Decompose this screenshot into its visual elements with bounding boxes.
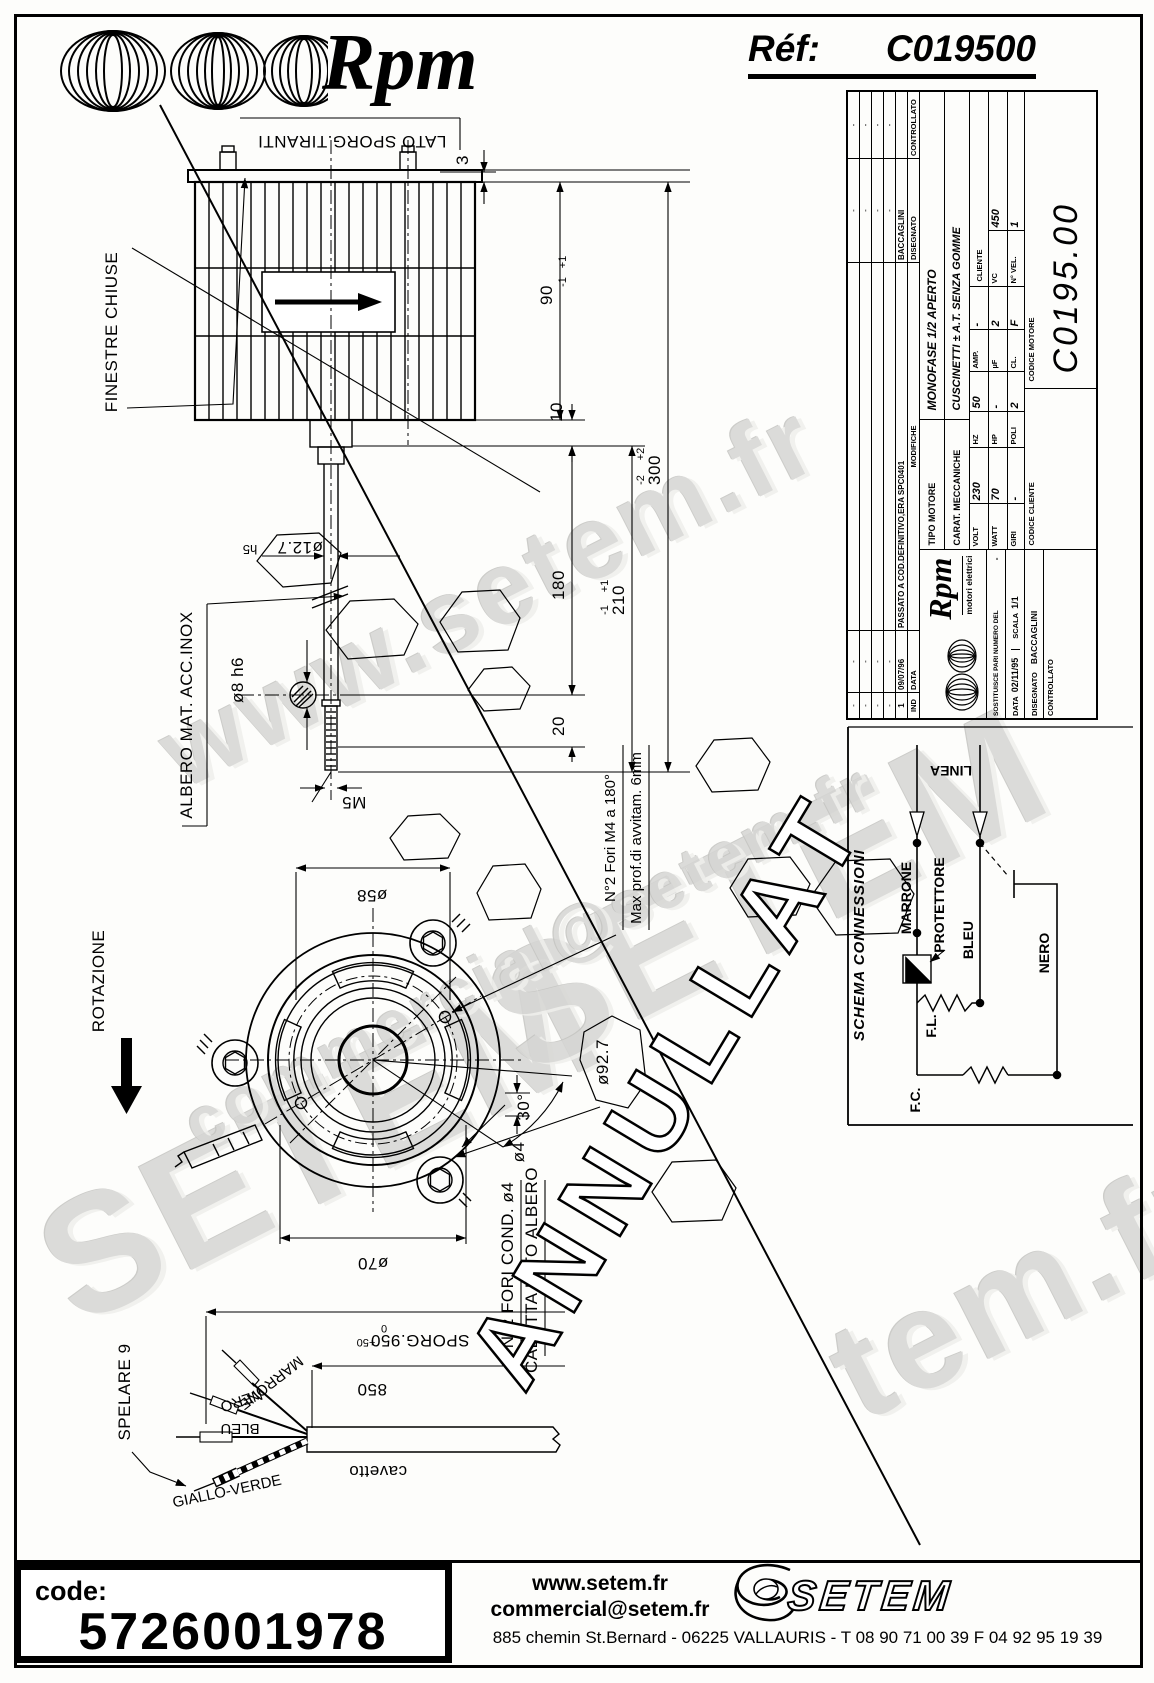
cliente-label: CLIENTE <box>975 249 984 285</box>
dim-20: 20 <box>549 716 568 736</box>
label-albero: ALBERO MAT. ACC.INOX <box>177 611 196 818</box>
hp-label: HP <box>989 411 1007 447</box>
rev-cell: - <box>884 92 896 158</box>
rev-disegnato-value: BACCAGLINI <box>896 158 908 262</box>
rev-col-data: DATA <box>908 630 920 692</box>
poli-value: 2 <box>1008 371 1025 411</box>
tb-rpm-script: Rpm <box>922 558 959 620</box>
tb-data-value: 02/11/95 <box>1010 658 1020 697</box>
dim-300-tol-minus: -2 <box>635 475 647 485</box>
dim-3: 3 <box>453 155 472 165</box>
dim-m5: M5 <box>342 793 367 812</box>
codice-motore-label: CODICE MOTORE <box>1027 318 1036 382</box>
dim-210: 210 <box>609 585 628 615</box>
tipo-motore-value: MONOFASE 1/2 APERTO <box>925 269 939 418</box>
schema-bleu: BLEU <box>960 921 976 959</box>
wire-label-bleu: BLEU <box>220 1420 259 1437</box>
label-rotazione: ROTAZIONE <box>89 930 108 1032</box>
carat-value: CUSCINETTI ± A.T. SENZA GOMME <box>951 227 963 418</box>
codice-cliente-label: CODICE CLIENTE <box>1025 389 1036 549</box>
side-view-dimension-texts: LATO SPORG.TIRANTI 3 90 +1 -1 10 180 20 … <box>102 132 664 819</box>
setem-logo-text: SETEM <box>785 1572 955 1620</box>
tipo-motore-label: TIPO MOTORE <box>920 419 944 549</box>
rev-cell: - <box>860 158 872 262</box>
rev-cell <box>848 262 860 630</box>
rev-cell: - <box>884 692 896 718</box>
rev-cell: - <box>872 692 884 718</box>
rev-index: 1 <box>896 692 908 718</box>
nvel-label: N° VEL. <box>1008 230 1025 286</box>
watt-label: WATT <box>989 503 1007 549</box>
rev-cell: - <box>848 692 860 718</box>
dim-d12-7: ø12.7 <box>277 538 323 557</box>
dim-90-tol-minus: -1 <box>557 277 569 287</box>
rev-col-controllato: CONTROLLATO <box>908 92 920 158</box>
tb-rpm-coils-icon <box>942 628 982 714</box>
rev-description: PASSATO A COD.DEFINITIVO,ERA SPC0401 <box>896 262 908 630</box>
carat-label: CARAT. MECCANICHE <box>945 419 969 549</box>
dim-210-tol-minus: -1 <box>599 605 611 615</box>
dim-d58: ø58 <box>357 886 388 905</box>
dim-10: 10 <box>547 402 566 422</box>
tb-disegnato-value: BACCAGLINI <box>1029 611 1039 672</box>
hz-label: HZ <box>970 411 988 447</box>
cable-detail-texts: BLEU NERO MARRONE GIALLO-VERDE cavetto 8… <box>115 1322 470 1511</box>
label-cavetto: cavetto <box>349 1462 407 1481</box>
schema-texts: SCHEMA CONNESSIONI LINEA MARRONE PROTETT… <box>851 763 1052 1112</box>
watt-value: 70 <box>989 447 1007 503</box>
dim-sporg-tol-50: +50 <box>357 1336 376 1348</box>
uf-value: 2 <box>989 291 1007 329</box>
label-max-prof: Max prof.di avvitam. 6mm <box>628 752 645 924</box>
poli-label: POLI <box>1008 411 1025 447</box>
tb-rpm-subtitle: motori elettrici <box>962 556 974 615</box>
motor-front-view <box>175 908 521 1212</box>
dim-300-tol-plus: +2 <box>635 448 647 461</box>
rev-cell: - <box>848 92 860 158</box>
dim-h5: h5 <box>243 542 257 557</box>
vc-label: VC <box>989 230 1007 286</box>
footer-address: 885 chemin St.Bernard - 06225 VALLAURIS … <box>460 1628 1135 1648</box>
rev-cell: - <box>848 630 860 692</box>
rev-cell: - <box>872 630 884 692</box>
vc-value: 450 <box>989 92 1007 230</box>
schema-protettore: PROTETTORE <box>931 857 947 952</box>
volt-label: VOLT <box>970 503 988 549</box>
giri-value: - <box>1008 447 1025 503</box>
sostituisce-value: - <box>992 550 1001 561</box>
wire-label-marrone: MARRONE <box>235 1352 306 1413</box>
tb-controllato-label: CONTROLLATO <box>1044 659 1055 718</box>
dim-180: 180 <box>549 570 568 600</box>
dim-210-tol-plus: +1 <box>599 580 611 593</box>
giri-label: GIRI <box>1008 503 1025 549</box>
rev-col-disegnato: DISEGNATO <box>908 158 920 262</box>
title-block: - - - - - - - - - - - - - - - - 1 09/07/… <box>846 90 1098 720</box>
volt-value: 230 <box>970 447 988 503</box>
label-finestre-chiuse: FINESTRE CHIUSE <box>102 252 121 413</box>
dim-850: 850 <box>357 1380 387 1399</box>
rev-cell <box>860 262 872 630</box>
connection-schema <box>848 727 1133 1125</box>
label-spelare: SPELARE 9 <box>115 1343 134 1440</box>
rev-cell: - <box>860 92 872 158</box>
schema-fl: F.L. <box>923 1014 939 1037</box>
rev-date: 09/07/96 <box>896 630 908 692</box>
rev-cell: - <box>872 92 884 158</box>
rev-cell: - <box>884 630 896 692</box>
rev-controllato-value <box>896 92 908 158</box>
rotation-arrow <box>111 1038 142 1114</box>
schema-linea: LINEA <box>930 763 972 779</box>
rev-cell: - <box>848 158 860 262</box>
dim-d8-h6: ø8 h6 <box>228 657 247 703</box>
footer-site: www.setem.fr <box>460 1572 740 1596</box>
tb-logo-block: Rpm motori elettrici <box>920 550 987 718</box>
label-fori-m4: N°2 Fori M4 a 180° <box>602 774 619 902</box>
hp-value: - <box>989 371 1007 411</box>
uf-label: µF <box>989 329 1007 371</box>
dim-sporg-tol-0: 0 <box>381 1322 387 1334</box>
nvel-value: 1 <box>1008 92 1025 230</box>
dim-90-tol-plus: +1 <box>557 256 569 269</box>
hz-value: 50 <box>970 371 988 411</box>
tb-data-label: DATA <box>1011 696 1020 718</box>
rev-col-modifiche: MODIFICHE <box>908 262 920 630</box>
rev-cell: - <box>884 158 896 262</box>
rev-cell: - <box>872 158 884 262</box>
rev-cell: - <box>860 630 872 692</box>
schema-marrone: MARRONE <box>898 862 914 934</box>
label-lato-sporg-tiranti: LATO SPORG.TIRANTI <box>258 132 447 151</box>
amp-label: AMP. <box>970 329 988 371</box>
rev-cell <box>872 262 884 630</box>
codice-motore-value: C0195.00 <box>1047 202 1086 373</box>
cl-label: CL. <box>1008 329 1025 371</box>
code-box: code: 5726001978 <box>14 1563 452 1663</box>
schema-nero: NERO <box>1036 933 1052 974</box>
sostituisce-label: SOSTITUISCE PARI NUMERO DEL <box>993 560 1000 718</box>
rev-cell: - <box>860 692 872 718</box>
dim-d70: ø70 <box>358 1254 389 1273</box>
tb-scala-label: SCALA <box>1011 613 1020 650</box>
amp-value: - <box>970 291 988 329</box>
dim-90: 90 <box>537 285 556 305</box>
rev-col-ind: IND <box>908 692 920 718</box>
schema-fc: F.C. <box>907 1088 923 1113</box>
dim-300: 300 <box>645 455 664 485</box>
dim-30deg: 30° <box>514 1093 533 1120</box>
code-value: 5726001978 <box>21 1602 445 1662</box>
tb-scala-value: 1/1 <box>1010 596 1020 613</box>
dim-d4: ø4 <box>509 1142 528 1163</box>
tb-disegnato-label: DISEGNATO <box>1030 672 1039 718</box>
footer-email: commercial@setem.fr <box>460 1598 740 1622</box>
cl-value: F <box>1008 291 1025 329</box>
rev-cell <box>884 262 896 630</box>
